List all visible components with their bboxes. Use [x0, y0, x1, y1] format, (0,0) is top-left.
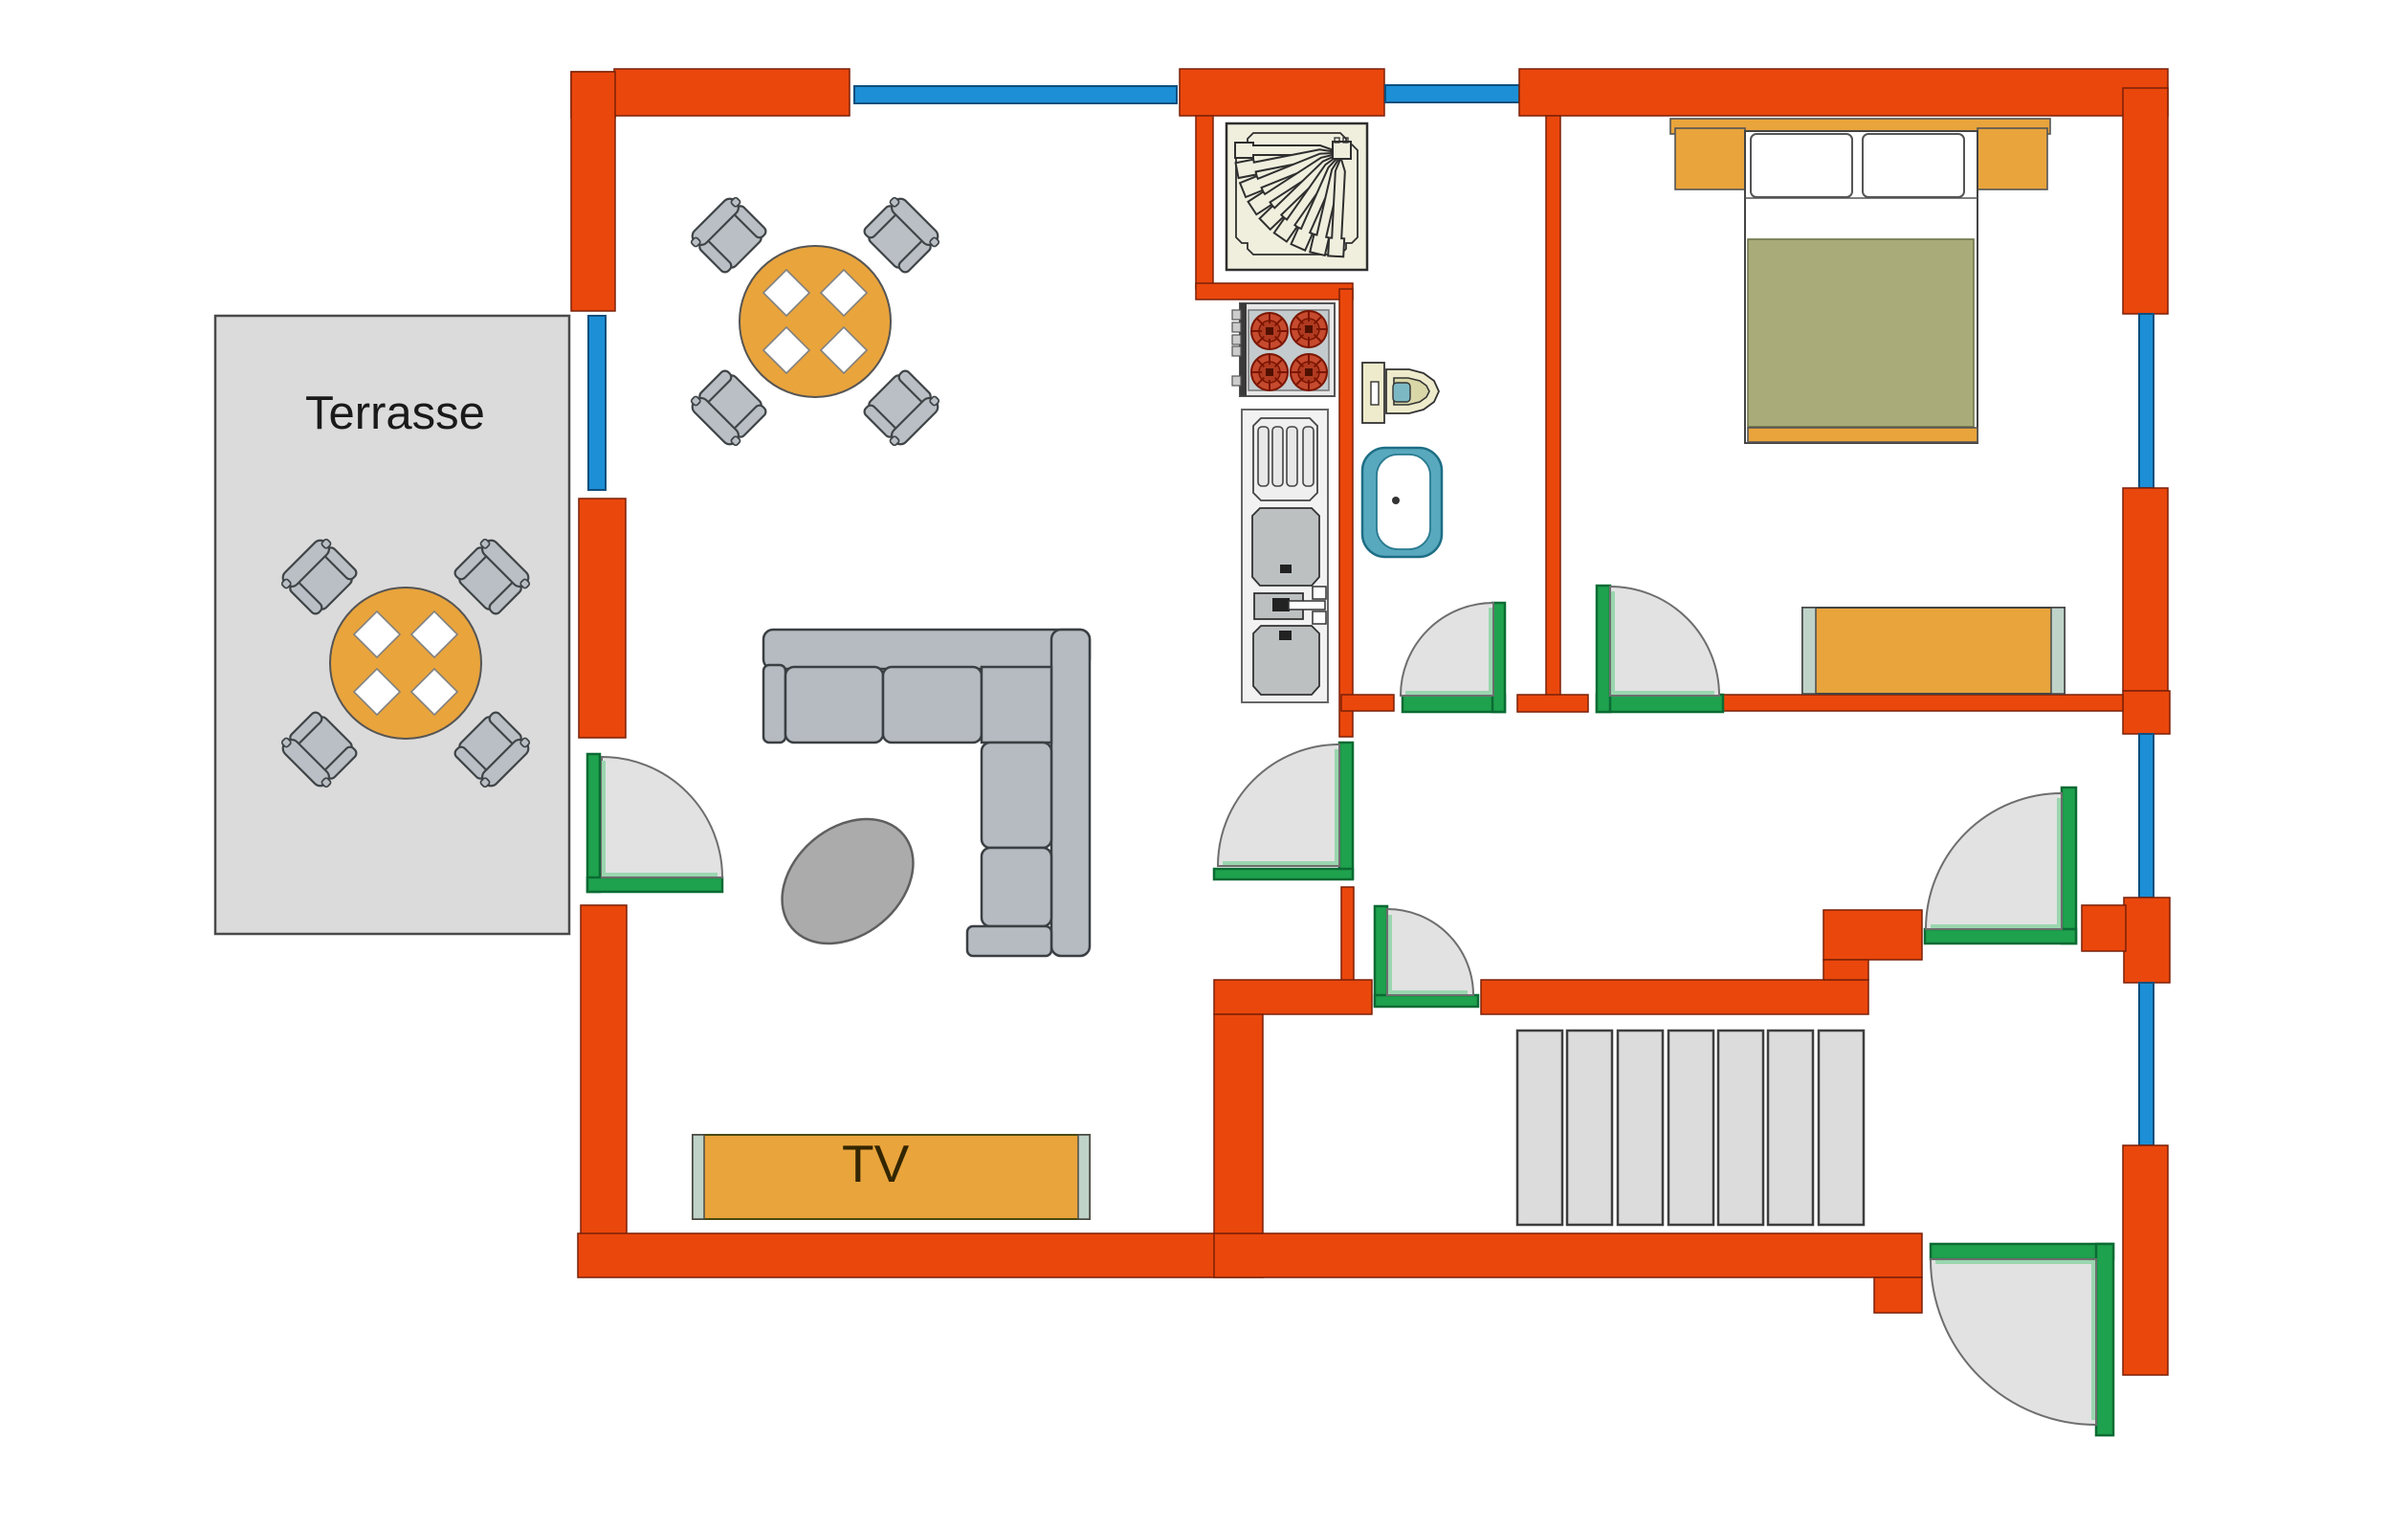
- svg-text:Terrasse: Terrasse: [305, 388, 485, 439]
- svg-text:TV: TV: [842, 1134, 910, 1193]
